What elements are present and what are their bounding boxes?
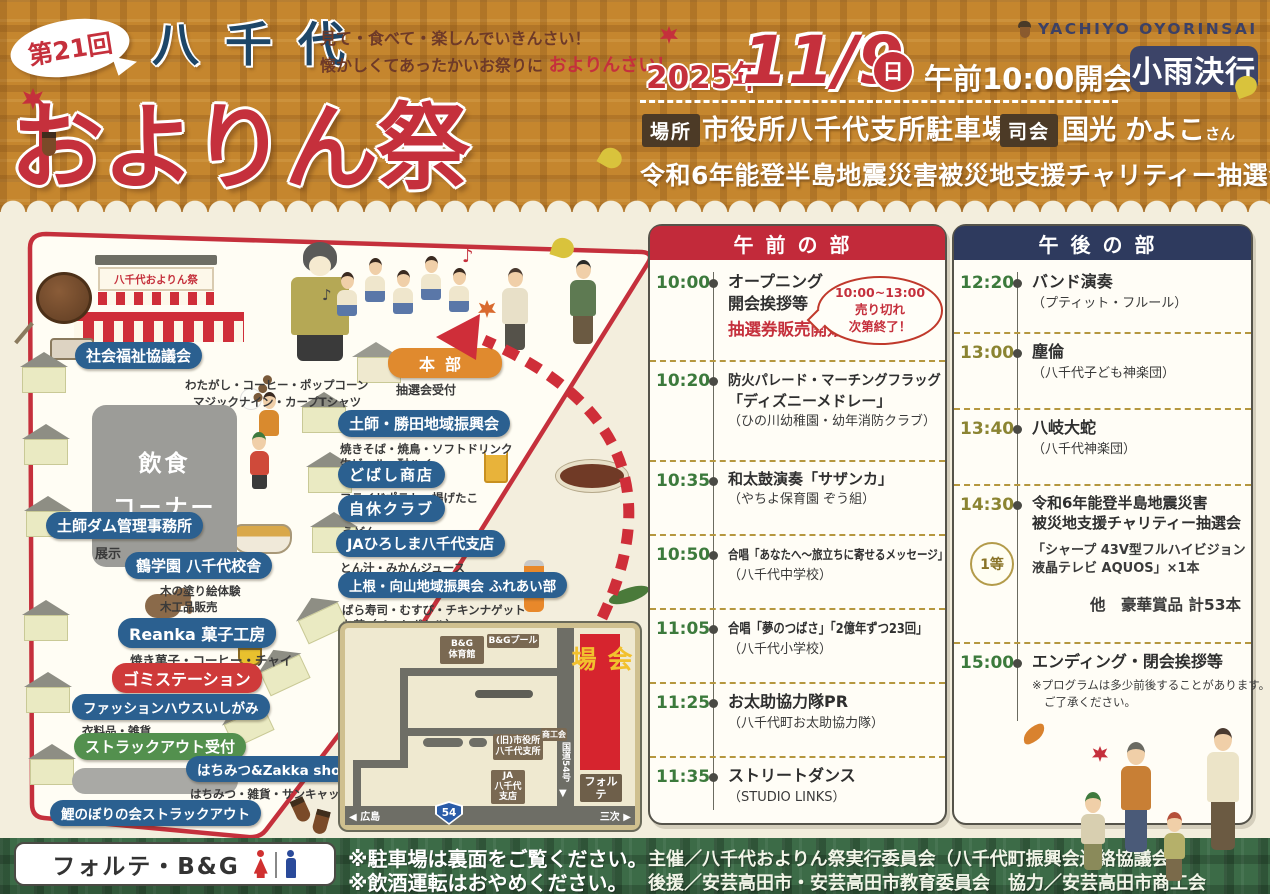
ja-line3: 支店 [499,792,517,803]
road [345,806,635,825]
schedule-performer: （STUDIO LINKS） [728,789,939,807]
schedule-time: 10:20 [656,371,710,391]
schedule-item: 10:50 合唱「あなたへ～旅立ちに寄せるメッセージ」 （八千代中学校） [650,534,945,608]
schedule-dot-icon [709,773,718,782]
schedule-item: 10:20 防火パレード・マーチングフラッグ 「ディズニーメドレー」 （ひの川幼… [650,360,945,460]
male-restroom-icon [284,850,298,878]
schedule-line: 防火パレード・マーチングフラッグ [728,372,941,391]
schedule-dot-icon [1013,501,1022,510]
family-child-illustration [1080,792,1106,870]
schedule-performer: （ひの川幼稚園・幼年消防クラブ） [728,413,939,431]
prize-line: 液晶テレビ AQUOS」×1本 [1032,560,1245,579]
schedule-item: 11:25 お太助協力隊PR （八千代町お太助協力隊） [650,682,945,756]
schedule-line: 被災地支援チャリティー抽選会 [1032,513,1245,533]
schedule-item: 13:00 塵倫 （八千代子ども神楽団） [954,332,1251,408]
west-direction-label: ◀ 広島 [349,808,380,823]
old-office-label: (旧)市役所 八千代支所 [493,734,543,760]
left-arrow-icon: ◀ [349,812,357,823]
schedule-line: 塵倫 [1032,341,1245,363]
schedule-time: 15:00 [960,653,1014,673]
afternoon-panel-title: 午後の部 [954,226,1251,260]
bubble-line1: 10:00~13:00 [821,285,939,302]
schedule-line: バンド演奏 [1032,271,1245,293]
schedule-dot-icon [1013,349,1022,358]
schedule-performer: （やちよ保育園 ぞう組） [728,491,939,509]
schedule-performer: （プティット・フルール） [1032,295,1245,313]
west-city: 広島 [360,812,380,823]
restroom-icons [254,850,298,878]
schedule-time: 10:00 [656,273,710,293]
bg-gym-line1: B&G [451,639,473,650]
schedule-time: 10:35 [656,471,710,491]
schedule-item: 14:30 令和6年能登半島地震災害 被災地支援チャリティー抽選会 1等 「シャ… [954,484,1251,642]
old-office-line1: (旧)市役所 [496,736,540,747]
program-note-line1: ※プログラムは多少前後することがあります。 [1032,677,1245,694]
prize-other: 他 豪華賞品 計53本 [1032,593,1245,615]
schedule-dot-icon [709,551,718,560]
shokokai-text: 商工会 [542,730,566,740]
family-girl-illustration [1162,812,1186,881]
access-map: B&G 体育館 B&Gプール (旧)市役所 八千代支所 商工会 JA 八千代 支… [340,623,640,830]
prize-line: 「シャープ 43V型フルハイビジョン [1032,542,1245,561]
road [400,668,408,760]
schedule-performer: （八千代町お太助協力隊） [728,715,939,733]
schedule-dot-icon [1013,425,1022,434]
drinking-note: ※飲酒運転はおやめください。 [348,867,627,894]
venue-text: 会場 [564,646,636,758]
schedule-line: 合唱「あなたへ～旅立ちに寄せるメッセージ」 [728,547,948,564]
schedule-time: 12:20 [960,273,1014,293]
schedule-performer: （八千代中学校） [728,567,939,585]
east-city: 三次 [600,812,620,823]
schedule-time: 14:30 [960,495,1014,515]
schedule-item: 15:00 エンディング・閉会挨拶等 ※プログラムは多少前後することがあります。… [954,642,1251,737]
schedule-time: 11:25 [656,693,710,713]
ja-line1: JA [503,771,513,782]
family-father-illustration [1206,728,1240,850]
road [353,760,361,806]
schedule-time: 11:35 [656,767,710,787]
schedule-item: 11:35 ストリートダンス （STUDIO LINKS） [650,756,945,826]
road [400,668,560,676]
schedule-time: 13:00 [960,343,1014,363]
schedule-line: 和太鼓演奏「サザンカ」 [728,469,939,489]
morning-panel-title: 午前の部 [650,226,945,260]
ja-line2: 八千代 [494,782,521,793]
east-direction-label: 三次 ▶ [600,808,631,823]
schedule-item: 13:40 八岐大蛇 （八千代神楽団） [954,408,1251,484]
schedule-dot-icon [709,699,718,708]
schedule-time: 11:05 [656,619,710,639]
forte-text: フォルテ [580,775,622,801]
schedule-dot-icon [1013,279,1022,288]
schedule-line: 「ディズニーメドレー」 [728,391,939,411]
right-arrow-icon: ▶ [623,812,631,823]
organizer-credit: 主催／八千代およりん祭実行委員会（八千代町振興会連絡協議会） [648,845,1188,871]
facility-name: フォルテ・B&G [52,847,239,881]
parking-strip [475,690,533,698]
maple-leaf-icon [1092,746,1108,762]
schedule-line: 令和6年能登半島地震災害 [1032,493,1245,513]
ja-branch-label: JA 八千代 支店 [491,770,525,804]
schedule-item: 10:35 和太鼓演奏「サザンカ」 （やちよ保育園 ぞう組） [650,460,945,534]
schedule-time: 13:40 [960,419,1014,439]
bg-pool-label: B&Gプール [487,634,539,648]
schedule-dot-icon [1013,659,1022,668]
schedule-item: 12:20 バンド演奏 （プティット・フルール） [954,264,1251,332]
afternoon-schedule-list: 12:20 バンド演奏 （プティット・フルール） 13:00 塵倫 （八千代子ど… [954,260,1251,737]
building-block [423,738,463,747]
bg-pool-text: B&Gプール [488,636,537,647]
schedule-performer: （八千代小学校） [728,641,939,659]
female-restroom-icon [254,850,268,878]
schedule-dot-icon [709,625,718,634]
schedule-dot-icon [709,377,718,386]
schedule-line: 八岐大蛇 [1032,417,1245,439]
facility-box: フォルテ・B&G [14,842,336,886]
bubble-line3: 次第終了！ [821,319,939,336]
support-credit: 後援／安芸高田市・安芸高田市教育委員会 協力／安芸高田市商工会 [648,869,1206,894]
first-prize-medal-icon: 1等 [970,542,1014,586]
building-block [469,738,487,747]
schedule-time: 10:50 [656,545,710,565]
venue-marker: 会場 [580,634,620,770]
lottery-notice-bubble: 10:00~13:00 売り切れ 次第終了！ [817,276,943,345]
bubble-line2: 売り切れ [821,302,939,319]
schedule-line: お太助協力隊PR [728,691,939,713]
restroom-divider [275,852,277,878]
flyer: 第21回 八千代 およりん祭 見て・食べて・楽しんでいきんさい！ 懐かしくてあっ… [0,0,1270,894]
morning-schedule-list: 10:00 オープニング 開会挨拶等 抽選券販売開始 10:00~13:00 売… [650,260,945,826]
bg-gym-line2: 体育館 [448,650,475,661]
schedule-dot-icon [709,279,718,288]
schedule-item: 10:00 オープニング 開会挨拶等 抽選券販売開始 10:00~13:00 売… [650,264,945,360]
schedule-line: 合唱「夢のつばさ」「2億年ずつ23回」 [728,620,927,638]
road [353,760,408,768]
down-arrow-icon: ▼ [559,788,567,799]
old-office-line2: 八千代支所 [495,747,540,758]
family-mother-illustration [1120,742,1152,852]
schedule-item: 11:05 合唱「夢のつばさ」「2億年ずつ23回」 （八千代小学校） [650,608,945,682]
schedule-dot-icon [709,477,718,486]
forte-label: フォルテ [580,774,622,802]
route-number: 54 [442,807,457,819]
bg-gym-label: B&G 体育館 [440,636,484,664]
schedule-line: エンディング・閉会挨拶等 [1032,651,1245,673]
schedule-performer: （八千代子ども神楽団） [1032,365,1245,383]
schedule-performer: （八千代神楽団） [1032,441,1245,459]
morning-schedule-panel: 午前の部 10:00 オープニング 開会挨拶等 抽選券販売開始 10:00~13… [648,224,947,825]
program-note-line2: ご了承ください。 [1032,694,1245,711]
schedule-line: ストリートダンス [728,765,939,787]
